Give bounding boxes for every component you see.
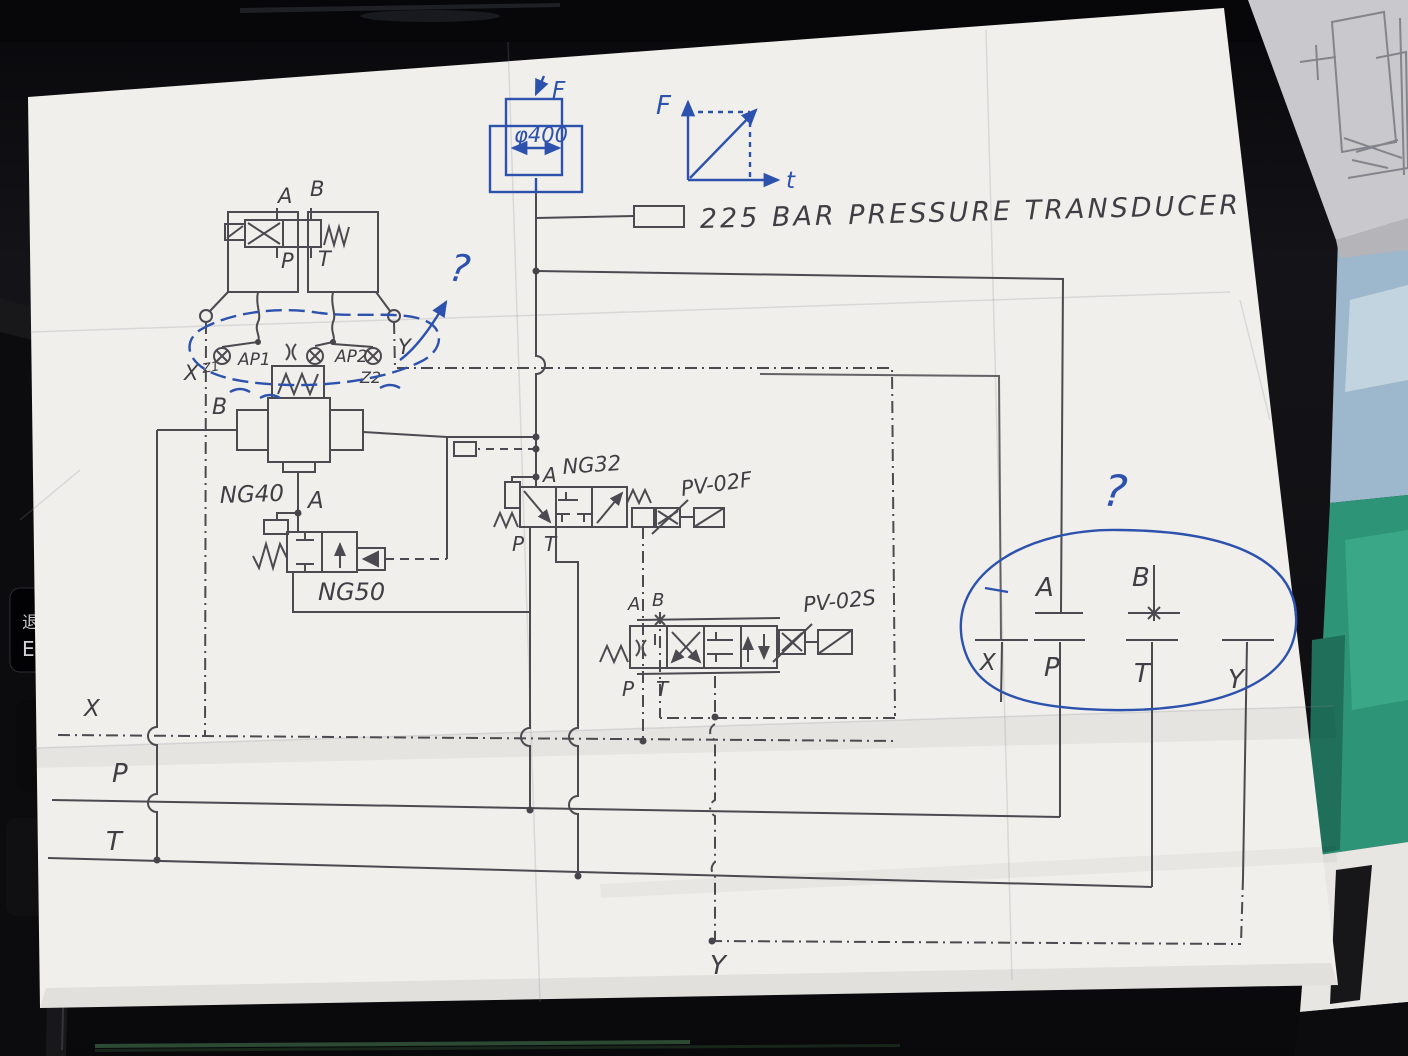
cylinder-bore-label: φ400 [514,123,568,147]
manifold-port-ap1: AP1 [237,350,271,370]
ng32-port-t: T [544,532,558,556]
graph-y-axis-label: F [656,91,672,121]
top-valve-port-t: T [318,247,333,271]
manifold-port-ap2: AP2 [334,347,368,367]
top-valve-port-a: A [276,184,292,208]
photo-of-hand-drawn-hydraulic-schematic: 退 Es [0,0,1408,1056]
ng40-port-a: A [306,488,324,514]
graph-x-axis-label: t [786,168,796,194]
rail-p-label: P [112,759,128,789]
pv02s-port-t: T [656,677,670,701]
interface-port-a: A [1034,573,1054,603]
scene-canvas: 退 Es [0,0,1408,1056]
ng50-label: NG50 [318,578,385,606]
pv02s-port-b: B [652,590,664,611]
rail-t-label: T [106,827,124,857]
cylinder-force-label: F [552,78,566,104]
top-valve-port-p: P [281,249,294,273]
ng32-port-a: A [541,463,557,487]
ng40-label: NG40 [219,481,284,509]
manifold-port-x: X [183,361,199,385]
top-valve-port-b: B [310,177,324,201]
ng32-port-p: P [512,532,525,556]
interface-port-t: T [1134,659,1152,689]
interface-port-p: P [1044,653,1060,683]
pv02s-port-p: P [622,677,635,701]
rail-x-label: X [83,696,101,722]
interface-port-b: B [1132,563,1150,593]
pv02s-port-a: A [627,594,640,615]
ng32-label: NG32 [562,451,622,479]
interface-port-x: X [979,650,997,676]
rail-y-label: Y [710,951,728,981]
ng40-port-b: B [212,395,227,420]
